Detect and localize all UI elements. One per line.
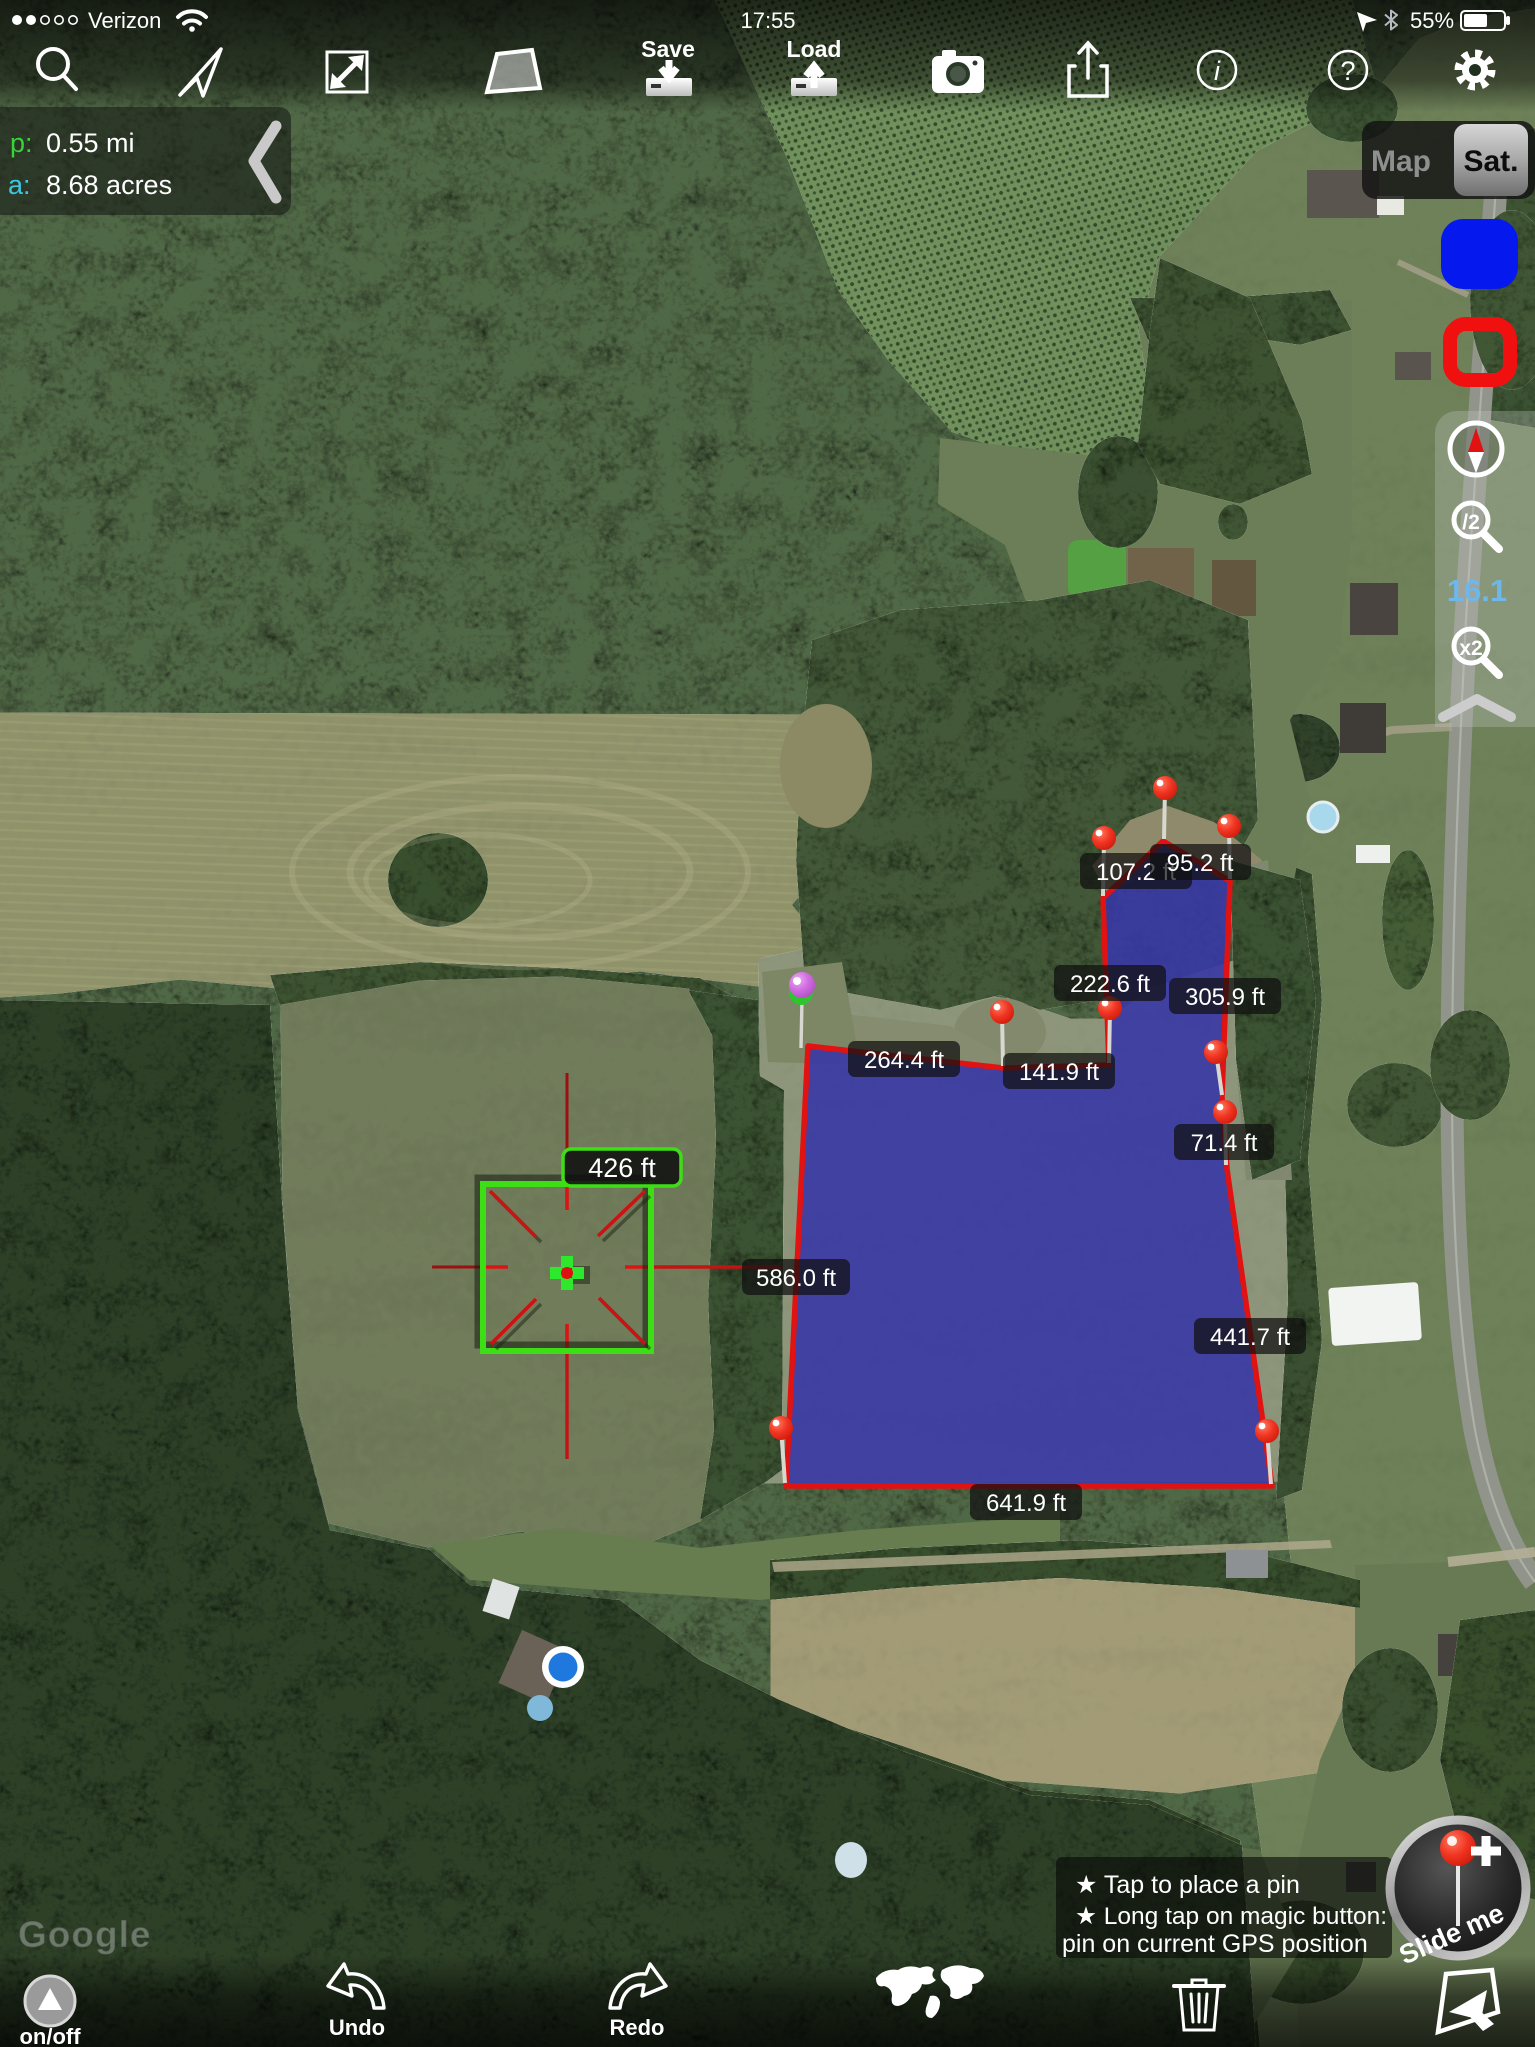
svg-text:Load: Load — [787, 36, 842, 62]
svg-text:0.55 mi: 0.55 mi — [46, 128, 135, 158]
svg-text:/2: /2 — [1462, 511, 1480, 534]
svg-text:95.2 ft: 95.2 ft — [1167, 850, 1234, 877]
svg-text:x2: x2 — [1459, 637, 1482, 660]
svg-text:16.1: 16.1 — [1447, 573, 1507, 608]
svg-text:a:: a: — [8, 170, 31, 200]
svg-text:pin on current GPS position: pin on current GPS position — [1062, 1930, 1368, 1958]
svg-text:Redo: Redo — [610, 2015, 665, 2040]
svg-text:586.0 ft: 586.0 ft — [756, 1265, 836, 1292]
svg-text:Undo: Undo — [329, 2015, 385, 2040]
svg-text:Map: Map — [1371, 145, 1431, 178]
svg-text:i: i — [1214, 56, 1221, 86]
svg-text:222.6 ft: 222.6 ft — [1070, 971, 1150, 998]
svg-text:141.9 ft: 141.9 ft — [1019, 1059, 1099, 1086]
svg-text:★ Tap to place a pin: ★ Tap to place a pin — [1075, 1871, 1300, 1899]
svg-text:?: ? — [1340, 56, 1355, 86]
svg-text:264.4 ft: 264.4 ft — [864, 1047, 944, 1074]
svg-text:71.4 ft: 71.4 ft — [1191, 1130, 1258, 1157]
svg-text:Save: Save — [641, 36, 695, 62]
svg-text:8.68 acres: 8.68 acres — [46, 170, 172, 200]
svg-text:★ Long tap on magic button:: ★ Long tap on magic button: — [1075, 1903, 1387, 1930]
svg-text:Verizon: Verizon — [88, 8, 161, 33]
svg-text:426 ft: 426 ft — [588, 1153, 656, 1183]
svg-text:305.9 ft: 305.9 ft — [1185, 984, 1265, 1011]
svg-text:55%: 55% — [1410, 8, 1454, 33]
svg-text:17:55: 17:55 — [740, 8, 795, 33]
svg-text:Google: Google — [18, 1914, 151, 1955]
svg-text:Sat.: Sat. — [1463, 145, 1518, 178]
svg-text:441.7 ft: 441.7 ft — [1210, 1324, 1290, 1351]
svg-text:on/off: on/off — [19, 2024, 81, 2047]
svg-text:641.9 ft: 641.9 ft — [986, 1490, 1066, 1517]
svg-text:p:: p: — [10, 128, 33, 158]
